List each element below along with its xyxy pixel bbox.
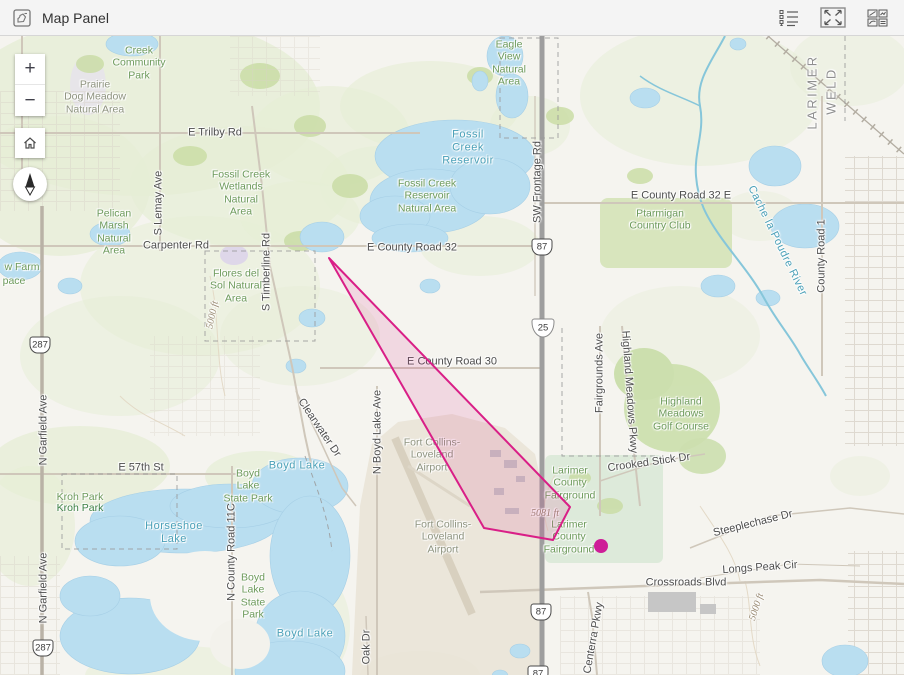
basemap-art (0, 36, 904, 675)
zoom-out-button[interactable]: − (15, 85, 45, 116)
legend-icon[interactable] (774, 5, 804, 31)
home-icon (22, 135, 38, 151)
map-panel-icon (12, 8, 32, 28)
map-canvas[interactable]: Creek Community ParkPrairie Dog Meadow N… (0, 36, 904, 675)
home-button[interactable] (15, 128, 45, 158)
panel-title: Map Panel (42, 10, 109, 26)
compass-button[interactable] (13, 167, 47, 201)
zoom-control: + − (15, 54, 45, 116)
compass-needle-icon (13, 167, 47, 201)
layout-windows-icon[interactable] (862, 5, 892, 31)
expand-icon[interactable] (818, 5, 848, 31)
panel-header: Map Panel (0, 0, 904, 36)
zoom-in-button[interactable]: + (15, 54, 45, 85)
